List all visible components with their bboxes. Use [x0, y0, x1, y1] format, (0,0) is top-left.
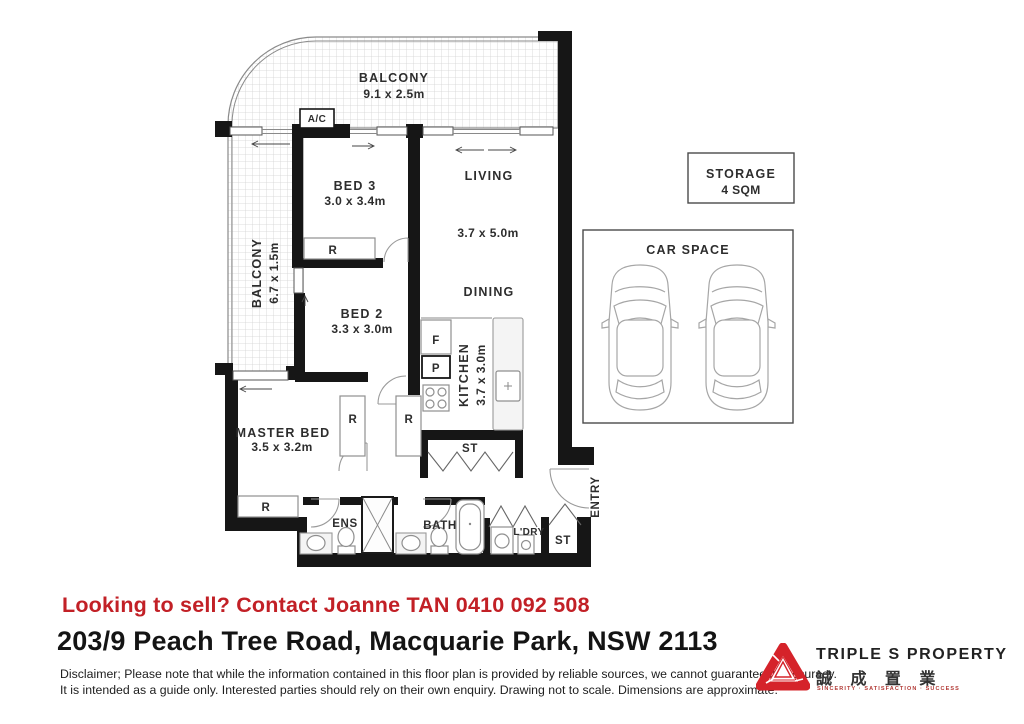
- disclaimer-line1: Disclaimer; Please note that while the i…: [60, 667, 837, 683]
- triple-s-logo-icon: [756, 643, 810, 697]
- storage-label: STORAGE: [706, 167, 776, 181]
- master-dims: 3.5 x 3.2m: [251, 440, 312, 454]
- ac-label: A/C: [308, 114, 326, 125]
- master-label: MASTER BED: [236, 426, 331, 440]
- bed2-dims: 3.3 x 3.0m: [331, 322, 392, 336]
- robe-label: R: [349, 414, 358, 426]
- fridge-label: F: [432, 335, 440, 347]
- bed3-label: BED 3: [334, 179, 377, 193]
- ensuite-fixtures: [300, 528, 355, 555]
- kitchen-fixtures: F P: [421, 318, 523, 430]
- shower: [362, 497, 393, 553]
- robe-label: R: [329, 245, 338, 257]
- car-space-label: CAR SPACE: [646, 243, 730, 257]
- balcony-top-dims: 9.1 x 2.5m: [363, 87, 424, 101]
- ens-label: ENS: [332, 518, 357, 530]
- floorplan-drawing: A/C R R R R F P: [0, 0, 1024, 585]
- storage-size: 4 SQM: [721, 183, 760, 197]
- disclaimer-line2: It is intended as a guide only. Interest…: [60, 683, 837, 699]
- robe-label: R: [405, 414, 414, 426]
- agent-contact-line: Looking to sell? Contact Joanne TAN 0410…: [62, 593, 590, 618]
- robe-label: R: [262, 502, 271, 514]
- entry-store-closet: [549, 504, 581, 525]
- floorplan-page: { "plan": { "balcony_top": {"label": "BA…: [0, 0, 1024, 724]
- disclaimer-text: Disclaimer; Please note that while the i…: [60, 667, 837, 698]
- car-icon: [699, 265, 775, 410]
- kitchen-label: KITCHEN: [457, 343, 471, 407]
- storage-box: STORAGE 4 SQM: [688, 153, 794, 203]
- property-address: 203/9 Peach Tree Road, Macquarie Park, N…: [57, 626, 718, 657]
- kitchen-dims: 3.7 x 3.0m: [474, 344, 488, 405]
- bed3-dims: 3.0 x 3.4m: [324, 194, 385, 208]
- bed2-label: BED 2: [341, 307, 384, 321]
- pantry-label: P: [432, 363, 440, 375]
- ldry-label: L'DRY: [513, 527, 544, 538]
- car-icon: [602, 265, 678, 410]
- agency-tagline: SINCERITY · SATISFACTION · SUCCESS: [817, 686, 960, 692]
- living-dims: 3.7 x 5.0m: [457, 226, 518, 240]
- bath-label: BATH: [423, 520, 457, 532]
- balcony-left-label: BALCONY: [250, 238, 264, 308]
- car-space-box: CAR SPACE: [583, 230, 793, 423]
- agency-name: TRIPLE S PROPERTY: [816, 646, 1008, 664]
- ac-unit: A/C: [300, 109, 334, 128]
- store-label: ST: [555, 535, 571, 547]
- balcony-left-dims: 6.7 x 1.5m: [267, 242, 281, 303]
- entry-label: ENTRY: [590, 476, 602, 518]
- store-label: ST: [462, 443, 478, 455]
- balcony-top-label: BALCONY: [359, 71, 429, 85]
- dining-label: DINING: [464, 285, 515, 299]
- living-label: LIVING: [465, 169, 514, 183]
- door-swings: [311, 238, 589, 527]
